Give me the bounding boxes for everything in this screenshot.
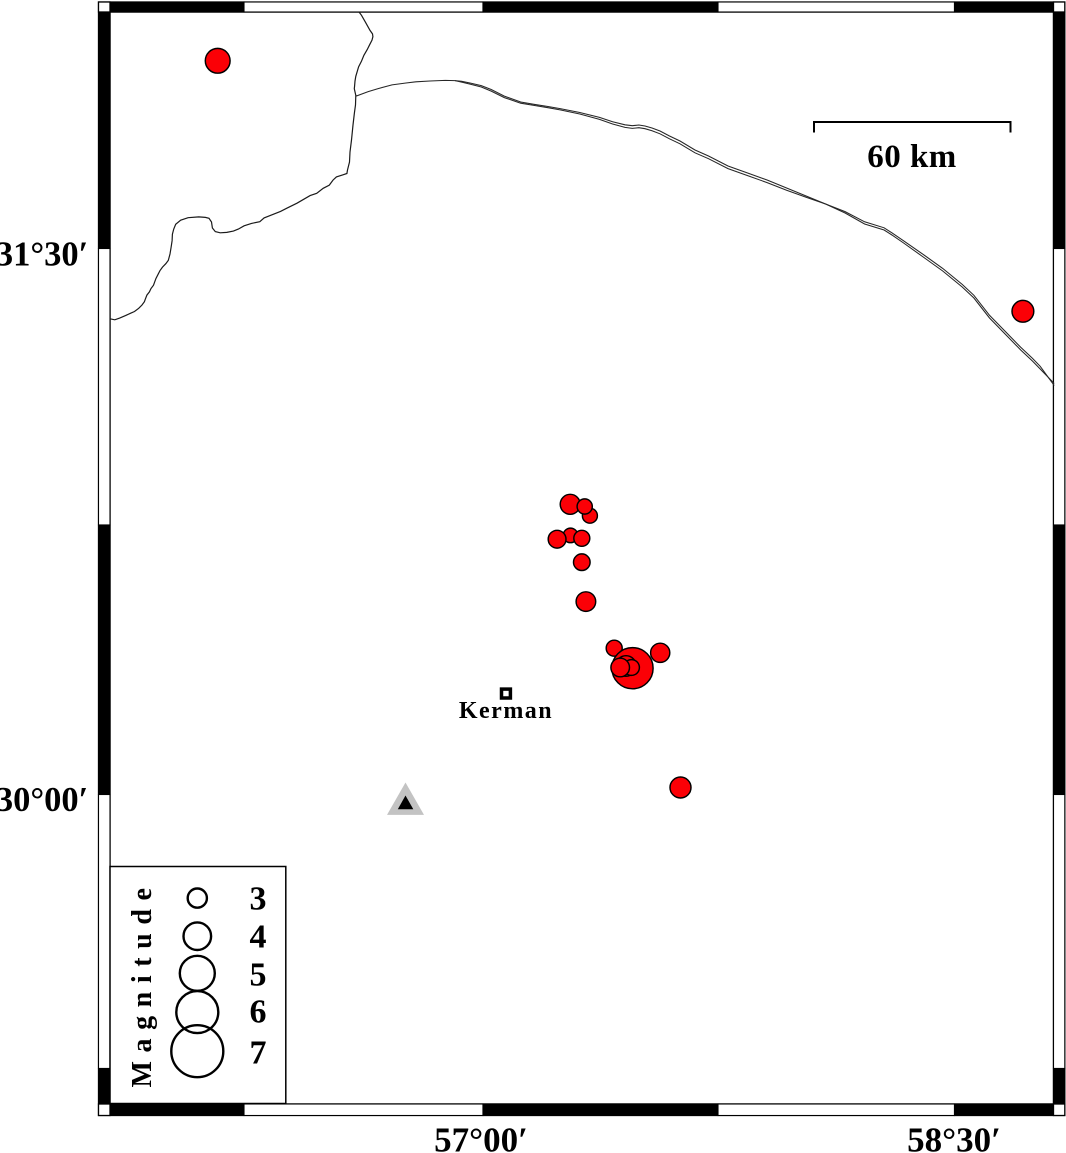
svg-text:60 km: 60 km: [867, 139, 957, 175]
svg-text:7: 7: [250, 1034, 267, 1071]
svg-text:Magnitude: Magnitude: [127, 879, 158, 1087]
svg-text:30°00′: 30°00′: [0, 781, 88, 819]
svg-text:31°30′: 31°30′: [0, 236, 88, 274]
svg-text:5: 5: [250, 956, 267, 993]
svg-text:3: 3: [250, 881, 267, 918]
svg-text:6: 6: [250, 994, 267, 1031]
svg-text:58°30′: 58°30′: [907, 1121, 1001, 1153]
svg-text:Kerman: Kerman: [459, 698, 553, 724]
svg-text:57°00′: 57°00′: [434, 1121, 528, 1153]
svg-text:4: 4: [250, 919, 267, 956]
